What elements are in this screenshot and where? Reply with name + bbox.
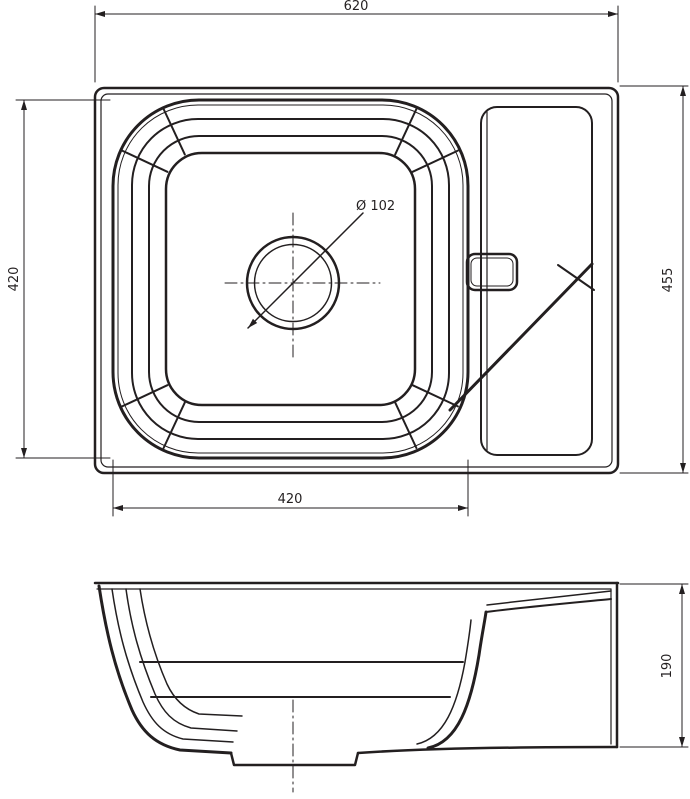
drain-diameter-leader [248, 213, 363, 328]
bowl-right-wall-outer [428, 612, 486, 748]
side-bottom-edge [358, 747, 617, 753]
dimension-overall-width: 620 [95, 0, 618, 82]
bowl-width-label: 420 [278, 492, 303, 507]
sink-technical-drawing: Ø 102 620 455 420 420 [0, 0, 690, 799]
drainer-surface-lower [486, 599, 611, 612]
bowl-wall-outer [99, 586, 231, 753]
drain-diameter-label: Ø 102 [356, 199, 395, 214]
drainer-diagonal-main [450, 264, 592, 410]
overall-height-label: 190 [660, 654, 675, 679]
dimension-bowl-width: 420 [113, 460, 468, 516]
bowl-contour-mid1 [132, 119, 449, 439]
sink-rim-inner-line [101, 94, 612, 467]
side-view [95, 583, 618, 792]
top-view: Ø 102 [95, 88, 618, 473]
bowl-right-wall-inner [417, 620, 471, 744]
drain-pedestal [231, 753, 358, 765]
bowl-corner-spokes [122, 109, 458, 448]
overflow-opening [467, 254, 517, 290]
bowl-depth-label: 420 [7, 267, 22, 292]
drawing-canvas: Ø 102 620 455 420 420 [0, 0, 690, 799]
dimension-overall-height: 190 [620, 584, 688, 747]
dimension-overall-depth: 455 [620, 86, 688, 473]
drainer-surface-upper [487, 591, 611, 605]
bowl-contour-mid2 [149, 136, 432, 422]
bowl-contour-bead [118, 105, 463, 453]
bowl-contour-floor [166, 153, 415, 405]
overall-depth-label: 455 [661, 268, 676, 293]
drain-hole: Ø 102 [225, 199, 395, 357]
bowl-wall-line3 [126, 589, 237, 731]
overall-width-label: 620 [344, 0, 369, 14]
